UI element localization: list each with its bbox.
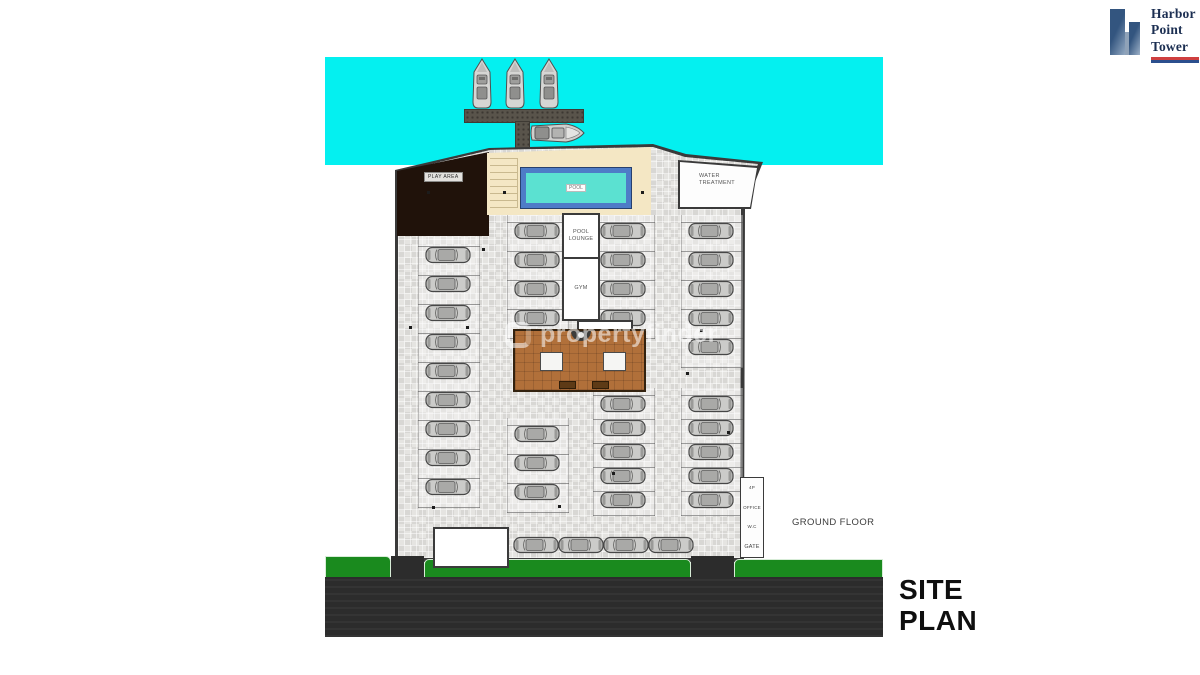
ground-floor-label: GROUND FLOOR [792, 517, 874, 528]
access-road [325, 577, 883, 637]
play-area-label: PLAY AREA [424, 172, 463, 182]
pool-lounge-label: POOL LOUNGE [568, 229, 594, 243]
pool-lounge-room: POOL LOUNGE [564, 215, 598, 259]
landscape-strip-left [325, 556, 391, 578]
site-plan-page: PLAY AREA POOL WATER TREATMENT POOL LOUN… [0, 0, 1200, 675]
amenity-block: POOL LOUNGE GYM [562, 213, 600, 321]
gate-strip-label-1: 4P [749, 485, 755, 490]
towers-icon [1108, 6, 1146, 58]
water-treatment-label: WATER TREATMENT [699, 173, 741, 188]
planter-left [559, 381, 576, 389]
watermark: propertyfinder [505, 320, 718, 349]
site-plan-title-line2: PLAN [899, 605, 977, 636]
elevator-right [603, 352, 626, 371]
elevator-left [540, 352, 563, 371]
tower-shape-tall [1110, 9, 1125, 55]
brand-line-3: Tower [1151, 39, 1199, 55]
pool-deck-zone: POOL [487, 146, 651, 215]
gym-room: GYM [564, 259, 598, 319]
tower-shape-short [1129, 22, 1140, 55]
brand-logo: Harbor Point Tower [1108, 6, 1199, 63]
ramp-structure [433, 527, 509, 568]
gate-label: GATE [744, 544, 759, 550]
swimming-pool: POOL [520, 167, 632, 209]
watermark-logo-icon [505, 322, 531, 348]
site-plan-title-line1: SITE [899, 574, 977, 605]
brand-line-2: Point [1151, 22, 1199, 38]
brand-logo-text: Harbor Point Tower [1151, 6, 1199, 63]
gate-house-strip: 4P OFFICE W.C GATE [740, 477, 764, 558]
brand-rule-blue [1151, 60, 1199, 63]
gate-strip-label-2: OFFICE [743, 505, 761, 510]
watermark-text: propertyfinder [540, 320, 718, 349]
pool-label: POOL [566, 184, 586, 192]
landscape-strip-right [734, 559, 883, 578]
gate-strip-label-3: W.C [747, 524, 756, 529]
sun-lounger-rows [490, 158, 518, 208]
brand-line-1: Harbor [1151, 6, 1199, 22]
planter-right [592, 381, 609, 389]
site-plan-title: SITE PLAN [899, 574, 977, 637]
gym-label: GYM [568, 285, 594, 292]
